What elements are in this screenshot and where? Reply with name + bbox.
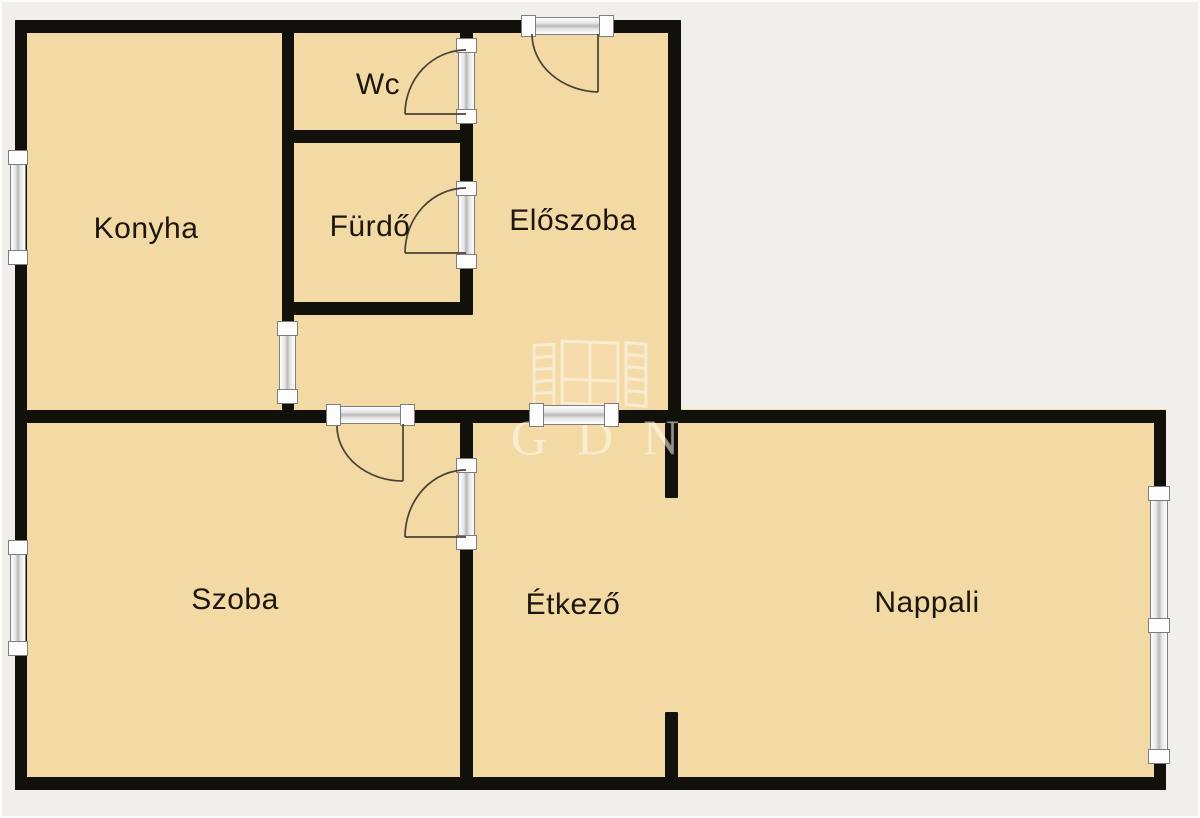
wall-etkezo-nappali-bottom bbox=[665, 712, 678, 790]
wall-eloszoba-right bbox=[668, 20, 681, 423]
szoba-door-opening-icon bbox=[327, 406, 414, 424]
wall-furdo-bottom bbox=[282, 302, 472, 315]
furdo-door-opening-icon bbox=[458, 182, 475, 268]
window-szoba-left-icon bbox=[10, 541, 26, 655]
wall-outer-bottom bbox=[15, 777, 1166, 790]
room-label-szoba: Szoba bbox=[191, 583, 279, 617]
window-middle-wall-icon bbox=[530, 405, 618, 425]
window-konyha-pass-icon bbox=[279, 322, 296, 403]
room-label-etkezo: Étkező bbox=[526, 588, 621, 622]
wall-outer-left bbox=[15, 20, 27, 790]
room-label-wc: Wc bbox=[356, 68, 400, 102]
window-konyha-left-icon bbox=[10, 151, 26, 264]
wall-wc-bottom bbox=[282, 130, 472, 143]
watermark-window-icon bbox=[528, 332, 652, 412]
etkezo-door-opening-icon bbox=[458, 459, 475, 549]
wc-door-opening-icon bbox=[458, 39, 475, 123]
room-label-nappali: Nappali bbox=[874, 586, 979, 620]
floorplan-canvas: GDN Konyha Wc Fürdő Elős bbox=[0, 0, 1200, 818]
window-nappali-right-icon bbox=[1150, 487, 1168, 763]
room-label-furdo: Fürdő bbox=[330, 210, 411, 244]
room-label-konyha: Konyha bbox=[94, 212, 199, 246]
entry-door-opening-icon bbox=[522, 17, 613, 35]
room-label-eloszoba: Előszoba bbox=[509, 204, 636, 238]
